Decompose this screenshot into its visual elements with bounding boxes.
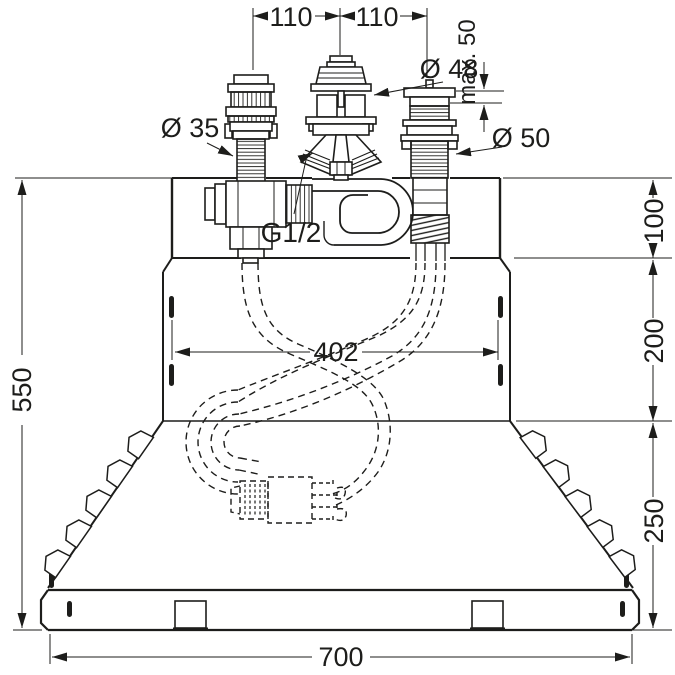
box-bevel-right: [500, 258, 510, 272]
label-offset-top: 100: [639, 198, 669, 243]
slot: [67, 601, 72, 617]
leader-dia-left: [207, 143, 233, 156]
slot: [620, 601, 625, 617]
label-dia-right: Ø 50: [492, 123, 551, 153]
label-max-depth: max. 50: [454, 19, 481, 104]
base-foot-left: [175, 601, 206, 628]
box-bevel-left: [163, 258, 172, 272]
technical-drawing-page: 110 110 Ø 48 max. 50 Ø 35 Ø 50 G1/2 402 …: [0, 0, 675, 675]
below-deck-tube: [413, 178, 447, 215]
threaded-shank-left: [237, 139, 265, 182]
base-foot-right: [472, 601, 503, 628]
fitting-center: [301, 56, 381, 180]
apron-clip-tabs: [39, 426, 641, 578]
slot: [169, 364, 174, 386]
label-total-width: 700: [318, 642, 363, 672]
fitting-left: [225, 75, 277, 182]
base-plate: [41, 590, 639, 630]
label-offset-bottom: 250: [639, 498, 669, 543]
connector-block: [231, 477, 346, 523]
label-thread: G1/2: [261, 217, 322, 248]
label-spacing-left: 110: [269, 2, 312, 32]
hose-spring-section: [411, 215, 449, 243]
label-total-height: 550: [7, 367, 37, 412]
slot: [498, 296, 503, 318]
label-spacing-right: 110: [355, 2, 398, 32]
connector-ribs: [245, 484, 265, 516]
installation-diagram: 110 110 Ø 48 max. 50 Ø 35 Ø 50 G1/2 402 …: [0, 0, 675, 675]
connector-comb: [312, 480, 337, 522]
label-dia-left: Ø 35: [161, 113, 220, 143]
hose-loop: [312, 179, 413, 245]
dashed-hoses: [186, 263, 445, 505]
label-offset-mid: 200: [639, 318, 669, 363]
slot: [169, 296, 174, 318]
label-hole-spacing: 402: [313, 337, 358, 367]
threaded-shank-right: [411, 141, 448, 178]
fitting-right: [401, 80, 458, 261]
slot: [498, 364, 503, 386]
